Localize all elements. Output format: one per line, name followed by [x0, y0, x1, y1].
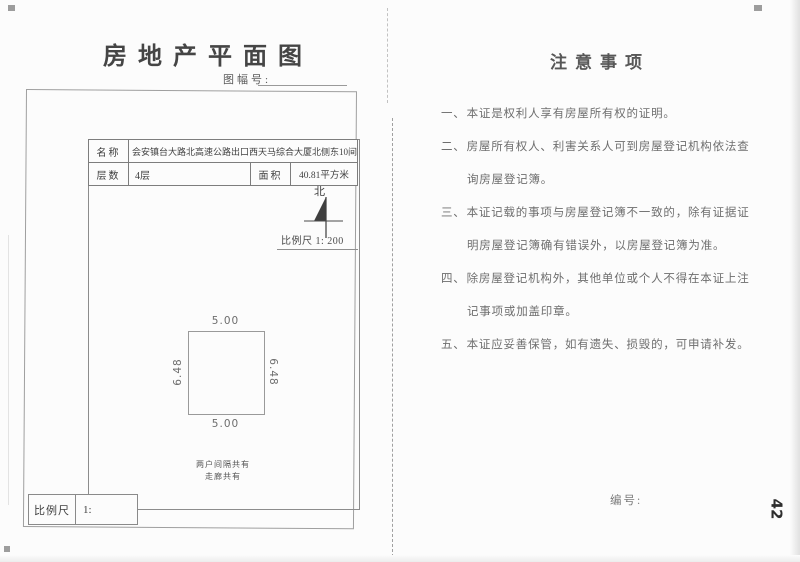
- note-item-4: 四、除房屋登记机构外，其他单位或个人不得在本证上注 记事项或加盖印章。: [441, 263, 781, 329]
- page-edge-left: [8, 235, 9, 505]
- scale-bar-label-cell: 比例尺: [29, 495, 76, 524]
- note-line-continuation: 询房屋登记簿。: [441, 164, 781, 197]
- property-info-table: 名称 会安镇台大路北高速公路出口西天马综合大厦北侧东10间 层数 4层 面积 4…: [88, 139, 358, 186]
- drawing-scale-note-rule: [277, 249, 358, 250]
- shared-ownership-note: 两户间隔共有 走廊共有: [177, 459, 269, 483]
- note-line-continuation: 记事项或加盖印章。: [441, 296, 781, 329]
- note-line: 五、本证应妥善保管，如有遗失、损毁的，可申请补发。: [441, 329, 781, 362]
- area-value-cell: 40.81平方米: [291, 163, 357, 185]
- note-text: 除房屋登记机构外，其他单位或个人不得在本证上注: [467, 273, 750, 285]
- scale-bar-value-cell: 1:: [76, 495, 137, 524]
- name-label-cell: 名称: [89, 140, 129, 162]
- scan-artifact-bottom-left: [4, 546, 10, 552]
- binding-seam-line: [392, 118, 393, 562]
- note-line: 一、本证是权利人享有房屋所有权的证明。: [441, 98, 781, 131]
- table-row-floors-area: 层数 4层 面积 40.81平方米: [89, 163, 357, 185]
- note-number: 二、: [441, 141, 466, 153]
- note-line: 二、房屋所有权人、利害关系人可到房屋登记机构依法查: [441, 131, 781, 164]
- notes-list: 一、本证是权利人享有房屋所有权的证明。 二、房屋所有权人、利害关系人可到房屋登记…: [441, 98, 781, 362]
- page-number: 42: [767, 499, 785, 520]
- floors-value-cell: 4层: [129, 163, 251, 185]
- notes-title: 注意事项: [460, 48, 740, 73]
- page-edge-bottom: [0, 555, 800, 562]
- binding-seam-line-top: [387, 8, 388, 103]
- note-text: 本证是权利人享有房屋所有权的证明。: [467, 108, 676, 120]
- note-text: 房屋所有权人、利害关系人可到房屋登记机构依法查: [467, 141, 750, 153]
- note-text: 本证记载的事项与房屋登记簿不一致的，除有证据证: [467, 207, 750, 219]
- note-item-2: 二、房屋所有权人、利害关系人可到房屋登记机构依法查 询房屋登记簿。: [441, 131, 781, 197]
- name-value-cell: 会安镇台大路北高速公路出口西天马综合大厦北侧东10间: [129, 140, 357, 162]
- floorplan-title: 房地产平面图: [103, 36, 313, 71]
- scan-artifact-top-right: [754, 5, 762, 11]
- dimension-top: 5.00: [188, 315, 263, 327]
- scanned-certificate-page: 房地产平面图 图幅号: 名称 会安镇台大路北高速公路出口西天马综合大厦北侧东10…: [0, 0, 800, 562]
- shared-note-line1: 两户间隔共有: [177, 459, 269, 471]
- note-number: 四、: [441, 273, 466, 285]
- note-text: 本证应妥善保管，如有遗失、损毁的，可申请补发。: [467, 339, 750, 351]
- dimension-right: 6.48: [267, 352, 279, 392]
- room-outline: [188, 331, 265, 415]
- note-number: 五、: [441, 339, 466, 351]
- note-number: 一、: [441, 108, 466, 120]
- note-line: 四、除房屋登记机构外，其他单位或个人不得在本证上注: [441, 263, 781, 296]
- floors-label-cell: 层数: [89, 163, 129, 185]
- note-item-1: 一、本证是权利人享有房屋所有权的证明。: [441, 98, 781, 131]
- scan-artifact-top-left: [8, 5, 15, 11]
- table-row-name: 名称 会安镇台大路北高速公路出口西天马综合大厦北侧东10间: [89, 140, 357, 163]
- serial-number-label: 编号:: [610, 492, 642, 508]
- shared-note-line2: 走廊共有: [177, 471, 269, 483]
- map-sheet-number-blank-line: [258, 85, 347, 86]
- drawing-scale-note: 比例尺 1: 200: [281, 232, 344, 247]
- note-line-continuation: 明房屋登记簿确有错误外，以房屋登记簿为准。: [441, 230, 781, 263]
- note-number: 三、: [441, 207, 466, 219]
- note-item-5: 五、本证应妥善保管，如有遗失、损毁的，可申请补发。: [441, 329, 781, 362]
- note-item-3: 三、本证记载的事项与房屋登记簿不一致的，除有证据证 明房屋登记簿确有错误外，以房…: [441, 197, 781, 263]
- note-line: 三、本证记载的事项与房屋登记簿不一致的，除有证据证: [441, 197, 781, 230]
- area-label-cell: 面积: [251, 163, 291, 185]
- dimension-bottom: 5.00: [188, 418, 263, 430]
- page-edge-right: [790, 0, 800, 562]
- scale-bar-table: 比例尺 1:: [28, 494, 138, 525]
- dimension-left: 6.48: [172, 352, 184, 392]
